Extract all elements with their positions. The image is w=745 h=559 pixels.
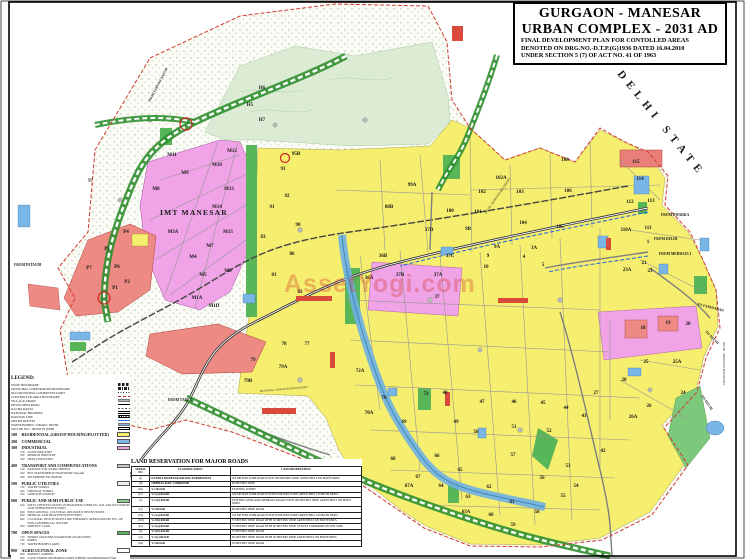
title-block: GURGAON - MANESAR URBAN COMPLEX - 2031 A… bbox=[513, 2, 727, 65]
sector-label: 105 bbox=[556, 225, 564, 230]
sector-label: 63 bbox=[466, 495, 472, 500]
legend-subcategory: 530GRID SUB-STATION bbox=[20, 493, 130, 497]
sector-label: 93 bbox=[281, 167, 287, 172]
sector-label: 52 bbox=[547, 429, 553, 434]
from-delhi-label: FROM DELHI bbox=[654, 237, 678, 241]
green-patch bbox=[70, 342, 86, 351]
sector-label: H5 bbox=[247, 103, 254, 108]
road-table-header-cell: SERIAL NO. bbox=[132, 467, 150, 476]
sector-label: 50 bbox=[474, 430, 480, 435]
sector-label: 24 bbox=[681, 391, 687, 396]
sector-label: M5 bbox=[199, 273, 207, 278]
sector-label: 37C bbox=[446, 254, 455, 259]
sector-label: P7 bbox=[86, 266, 92, 271]
sector-label: M9 bbox=[181, 171, 189, 176]
sector-label: 111 bbox=[645, 226, 652, 231]
sector-label: 36B bbox=[379, 254, 388, 259]
sector-label: 101 bbox=[474, 210, 482, 215]
sector-label: 66 bbox=[435, 454, 441, 459]
sector-label: 77 bbox=[305, 342, 311, 347]
sector-label: 44 bbox=[564, 406, 570, 411]
sector-label: H6 bbox=[259, 86, 266, 91]
sector-label: 9B bbox=[465, 227, 472, 232]
sector-label: 73 bbox=[424, 392, 430, 397]
sector-label: 48 bbox=[443, 391, 449, 396]
sector-label: 91 bbox=[270, 205, 276, 210]
legend-item-label: SECTOR NO. / DENSITY (PPH) bbox=[11, 427, 54, 431]
sector-label: 70A bbox=[365, 411, 374, 416]
sector-label: 19 bbox=[666, 321, 672, 326]
sector-label: 115 bbox=[632, 160, 640, 165]
legend-category-swatch bbox=[117, 481, 130, 486]
legend-swatch bbox=[118, 427, 130, 431]
map-subtitle-3: UNDER SECTION 5 (7) OF ACT NO. 41 OF 196… bbox=[521, 52, 721, 60]
legend-swatch bbox=[118, 387, 130, 391]
sector-label: 43 bbox=[582, 414, 588, 419]
sector-label: M1D bbox=[209, 304, 220, 309]
legend-category-swatch bbox=[117, 531, 130, 536]
sector-label: 53 bbox=[566, 464, 572, 469]
legend-swatch bbox=[118, 392, 130, 393]
sector-label: 63A bbox=[462, 510, 471, 515]
sector-label: 56 bbox=[540, 476, 546, 481]
legend-category-swatch bbox=[117, 439, 130, 444]
legend-categories: 100RESIDENTIAL (GROUP HOUSING/PLOTTED)20… bbox=[11, 432, 130, 559]
sector-label: 102 bbox=[478, 190, 486, 195]
road-table-header-cell: CLASSIFICATION bbox=[150, 467, 231, 476]
sector-label: 9A bbox=[494, 245, 501, 250]
delhi-haryana-boundary-label-2: DELHI - HARYANA BOUNDARY bbox=[722, 342, 726, 386]
sector-label: 68 bbox=[391, 457, 397, 462]
legend-category-swatch bbox=[117, 432, 130, 437]
sector-label: 46 bbox=[512, 400, 518, 405]
sector-label: 79 bbox=[251, 358, 257, 363]
legend-category-swatch bbox=[117, 548, 130, 553]
sector-label: M8 bbox=[152, 187, 160, 192]
sector-label: 86 bbox=[290, 252, 296, 257]
sector-label: 55 bbox=[561, 494, 567, 499]
sector-label: 67 bbox=[416, 475, 422, 480]
legend-category-swatch bbox=[117, 446, 130, 451]
from-pataudi-label: FROM PATAUDI bbox=[14, 263, 42, 267]
sector-label: 67A bbox=[405, 484, 414, 489]
sector-label: 83 bbox=[261, 235, 267, 240]
sector-label: 72A bbox=[356, 369, 365, 374]
legend-swatch bbox=[118, 399, 130, 403]
sector-label: 81 bbox=[272, 273, 278, 278]
sector-label: 100 bbox=[446, 209, 454, 214]
sector-label: 104 bbox=[519, 221, 527, 226]
sector-label: 25A bbox=[673, 360, 682, 365]
sector-label: M13 bbox=[224, 187, 234, 192]
sector-label: M12 bbox=[227, 149, 237, 154]
road-table-row: (xii)V-3 ROAD30 METERS WIDE ROAD bbox=[132, 540, 362, 546]
map-sheet: M11M12M10M9M8M13M14M3AM15M7M4M6M5M1AM1DH… bbox=[0, 0, 745, 559]
legend-category: 200COMMERCIAL bbox=[11, 439, 130, 444]
sector-label: 112 bbox=[626, 200, 634, 205]
map-title-line1: GURGAON - MANESAR bbox=[519, 6, 721, 22]
sector-label: H7 bbox=[259, 118, 266, 123]
from-dwarka-label: FROM DWARKA bbox=[661, 213, 690, 217]
legend-swatch bbox=[118, 411, 130, 414]
sector-label: 42 bbox=[601, 449, 607, 454]
sector-label: 113 bbox=[647, 199, 655, 204]
sector-label: 106 bbox=[564, 189, 572, 194]
sector-label: 37D bbox=[425, 228, 434, 233]
sector-label: 59 bbox=[511, 523, 517, 528]
map-subtitle-1: FINAL DEVELOPMENT PLAN FOR CONTOLLED ARE… bbox=[521, 37, 721, 45]
legend-swatch bbox=[118, 396, 130, 398]
legend-category-swatch bbox=[117, 464, 130, 469]
sector-label: 79B bbox=[244, 379, 253, 384]
sector-label: 28 bbox=[622, 378, 628, 383]
legend-subcategory: 430TELEPHONE EXCHANGE bbox=[20, 476, 130, 480]
sector-label: 64 bbox=[439, 484, 445, 489]
sector-label: 26 bbox=[647, 404, 653, 409]
sector-label: P2 bbox=[124, 280, 130, 285]
legend-swatch bbox=[118, 420, 130, 422]
road-reservation-table: LAND RESERVATION FOR MAJOR ROADS SERIAL … bbox=[131, 459, 362, 547]
sector-label: 57 bbox=[511, 453, 517, 458]
imt-manesar-label: IMT MANESAR bbox=[160, 208, 228, 217]
sector-label: M15 bbox=[223, 230, 233, 235]
sector-label: 25 bbox=[644, 360, 650, 365]
legend-swatch bbox=[118, 415, 130, 419]
sector-label: 23A bbox=[623, 268, 632, 273]
sector-label: 110A bbox=[621, 228, 632, 233]
sector-label: 114 bbox=[636, 177, 644, 182]
sector-label: 54 bbox=[574, 484, 580, 489]
legend-heading: LEGEND: bbox=[11, 375, 130, 381]
sector-label: 47 bbox=[480, 400, 486, 405]
sector-label: M1A bbox=[192, 296, 203, 301]
map-subtitle-2: DENOTED ON DRG.NO.-D.T.P.(G)1936 DATED 1… bbox=[521, 45, 721, 53]
sector-label: 26A bbox=[629, 415, 638, 420]
sector-label: M3A bbox=[168, 230, 179, 235]
sector-label: 88B bbox=[385, 205, 394, 210]
sector-label: 108 bbox=[561, 158, 569, 163]
sector-label: 61 bbox=[510, 500, 516, 505]
road-table-header-cell: LAND RESERVATION bbox=[230, 467, 361, 476]
sector-label: 45 bbox=[541, 401, 547, 406]
legend-swatch bbox=[118, 408, 130, 409]
sector-label: 3A bbox=[531, 246, 538, 251]
from-tauru-label: FROM TAURU bbox=[168, 398, 193, 402]
sector-label: 99A bbox=[408, 183, 417, 188]
sector-label: 62 bbox=[487, 485, 493, 490]
green-patch bbox=[694, 276, 707, 294]
sector-label: 90 bbox=[296, 223, 302, 228]
sector-label: 23 bbox=[648, 269, 654, 274]
zone-red-115 bbox=[620, 150, 662, 167]
road-table-header: SERIAL NO.CLASSIFICATIONLAND RESERVATION bbox=[132, 467, 362, 476]
sector-label: P5 bbox=[104, 247, 110, 252]
sector-label: 92 bbox=[285, 194, 291, 199]
legend-subcategory: 650DEFENCE LAND bbox=[20, 525, 130, 529]
sector-label: P6 bbox=[114, 265, 120, 270]
road-table-title: LAND RESERVATION FOR MAJOR ROADS bbox=[131, 459, 362, 466]
sector-label: 27 bbox=[594, 391, 600, 396]
sector-label: M10 bbox=[212, 163, 222, 168]
sector-label: P4 bbox=[123, 230, 129, 235]
sector-label: 70 bbox=[382, 396, 388, 401]
sector-label: 79A bbox=[279, 365, 288, 370]
yellow-patch-west bbox=[132, 234, 148, 246]
green-belt-imt bbox=[246, 145, 257, 317]
legend-category: 100RESIDENTIAL (GROUP HOUSING/PLOTTED) bbox=[11, 432, 130, 437]
sector-label: 60 bbox=[489, 513, 495, 518]
sector-label: 51 bbox=[512, 425, 518, 430]
watermark: AssetYogi.com bbox=[284, 270, 476, 299]
sector-label: 103 bbox=[516, 190, 524, 195]
legend-swatch bbox=[118, 403, 130, 407]
red-patch bbox=[452, 26, 463, 41]
sector-label: 58 bbox=[535, 510, 541, 515]
sector-label: M4 bbox=[189, 255, 197, 260]
road-table-row: (v)V-1 (b) ROADEXISTING GURGAON-MEHRAULI… bbox=[132, 498, 362, 507]
legend-subcategory: 730WATER BODIES/LAKES bbox=[20, 543, 130, 547]
sector-label: M6 bbox=[224, 269, 232, 274]
zone-red-left-edge bbox=[28, 284, 60, 310]
sector-label: M7 bbox=[206, 244, 214, 249]
sector-label: 49 bbox=[454, 420, 460, 425]
legend-item: SECTOR NO. / DENSITY (PPH) bbox=[11, 427, 130, 431]
sector-label: 95B bbox=[292, 152, 301, 157]
legend-swatch bbox=[118, 383, 130, 387]
sector-label: 10 bbox=[484, 265, 490, 270]
sector-label: 78 bbox=[282, 342, 288, 347]
sector-label: 20 bbox=[686, 322, 692, 327]
legend: LEGEND: STATE BOUNDARYMUNICIPAL CORPORAT… bbox=[11, 375, 130, 559]
sector-label: 18 bbox=[641, 326, 647, 331]
from-mehrauli-label: FROM MEHRAULI bbox=[659, 252, 692, 256]
map-title-line2: URBAN COMPLEX - 2031 AD bbox=[519, 22, 721, 38]
water-body bbox=[706, 421, 724, 435]
legend-swatch bbox=[118, 423, 130, 427]
sector-label: M11 bbox=[167, 153, 177, 158]
legend-line-items: STATE BOUNDARYMUNICIPAL CORPORATION BOUN… bbox=[11, 383, 130, 431]
sector-label: 21 bbox=[642, 261, 648, 266]
sector-label: 69 bbox=[402, 420, 408, 425]
sector-label: 65 bbox=[458, 468, 464, 473]
legend-subcategory: 330HEAVY INDUSTRY bbox=[20, 458, 130, 462]
sector-label: P1 bbox=[112, 286, 118, 291]
